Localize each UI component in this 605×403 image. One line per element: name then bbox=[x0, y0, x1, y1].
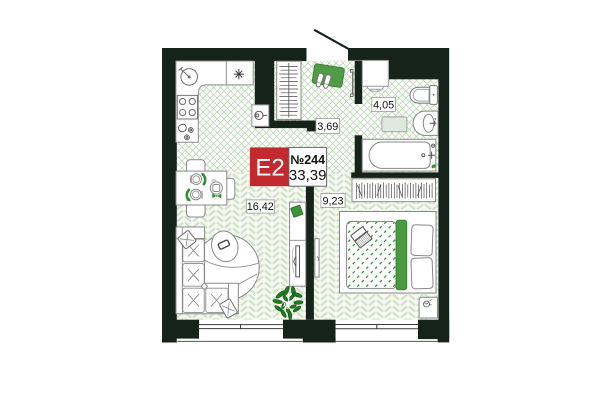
svg-text:33,39: 33,39 bbox=[289, 167, 327, 184]
svg-text:E2: E2 bbox=[255, 155, 284, 182]
svg-text:9,23: 9,23 bbox=[322, 196, 343, 208]
svg-text:№244: №244 bbox=[290, 153, 325, 167]
svg-text:4,05: 4,05 bbox=[373, 99, 394, 111]
svg-text:16,42: 16,42 bbox=[247, 201, 274, 213]
svg-text:3,69: 3,69 bbox=[317, 121, 338, 133]
